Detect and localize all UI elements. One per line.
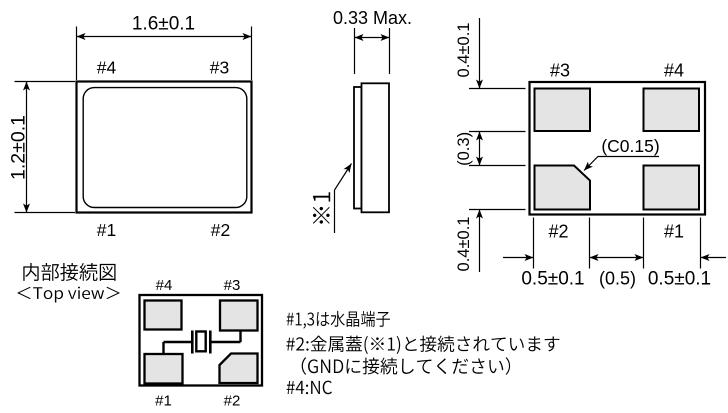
svg-text:#3: #3 [550, 61, 570, 81]
svg-text:#2: #2 [548, 222, 568, 242]
svg-text:1.6±0.1: 1.6±0.1 [132, 14, 195, 35]
svg-text:#4: #4 [97, 58, 117, 78]
svg-text:0.33 Max.: 0.33 Max. [333, 8, 412, 28]
svg-text:0.4±0.1: 0.4±0.1 [455, 217, 473, 272]
svg-text:#1: #1 [664, 222, 684, 242]
svg-text:(C0.15): (C0.15) [601, 136, 659, 156]
svg-text:(0.5): (0.5) [599, 269, 636, 289]
svg-text:#4: #4 [156, 277, 173, 294]
svg-text:0.5±0.1: 0.5±0.1 [648, 269, 711, 290]
svg-text:(0.3): (0.3) [455, 132, 473, 166]
svg-text:0.5±0.1: 0.5±0.1 [521, 269, 584, 290]
svg-text:#3: #3 [224, 277, 241, 294]
svg-text:#1: #1 [97, 220, 116, 240]
svg-text:#4: #4 [664, 61, 684, 81]
svg-text:#2: #2 [224, 393, 241, 410]
svg-text:#2: #2 [211, 220, 230, 240]
svg-text:0.4±0.1: 0.4±0.1 [455, 23, 473, 78]
svg-text:#3: #3 [210, 58, 229, 78]
svg-text:#1: #1 [155, 393, 172, 410]
